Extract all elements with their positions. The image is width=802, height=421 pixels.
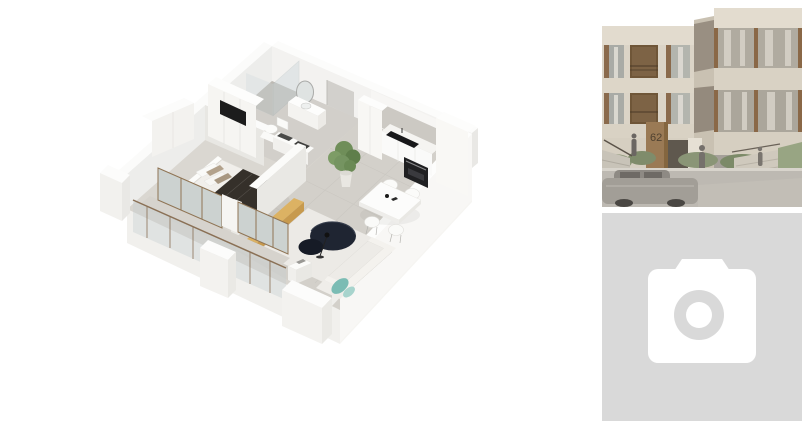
floorplan-3d-render [0, 0, 560, 421]
media-gallery: 62 [0, 0, 802, 421]
building-exterior-thumbnail[interactable]: 62 [602, 0, 802, 207]
photo-placeholder [602, 213, 802, 421]
floor-lamp [325, 233, 330, 238]
building-exterior-render: 62 [602, 0, 802, 207]
house-number: 62 [650, 132, 662, 144]
floorplan-image[interactable] [0, 0, 560, 421]
camera-icon [636, 257, 768, 377]
street-foreground [602, 168, 802, 207]
